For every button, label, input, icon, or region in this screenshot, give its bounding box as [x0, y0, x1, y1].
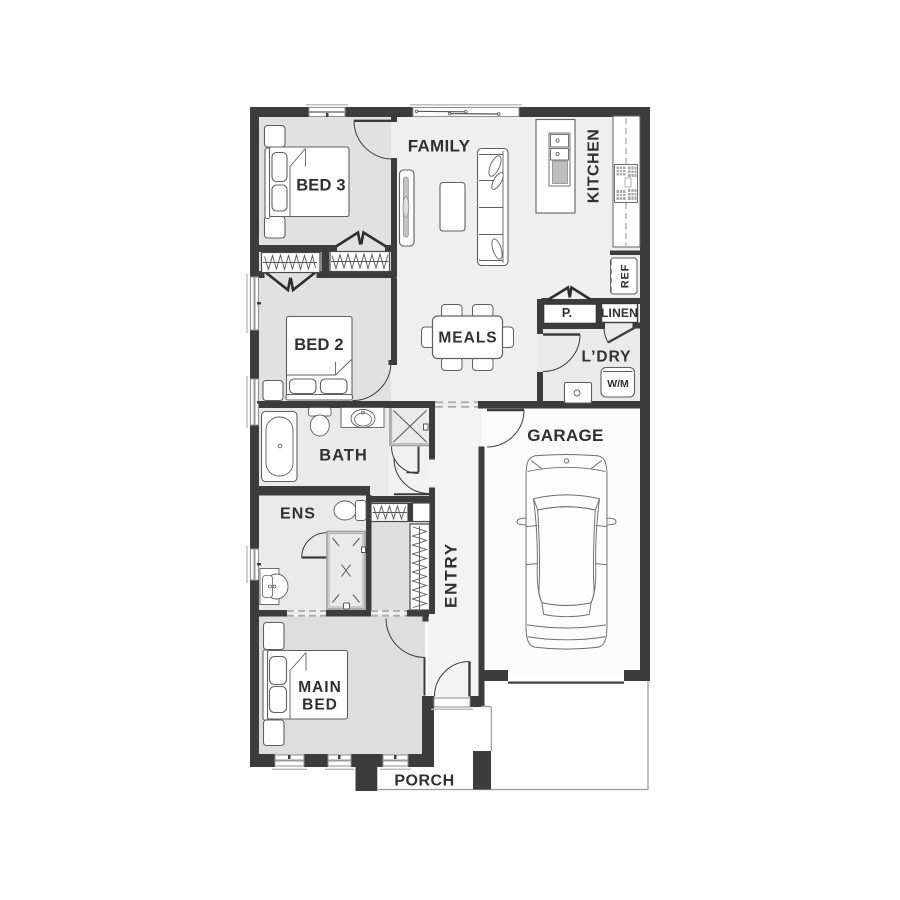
svg-text:ENTRY: ENTRY: [442, 542, 461, 608]
svg-text:KITCHEN: KITCHEN: [586, 129, 603, 204]
svg-text:GARAGE: GARAGE: [527, 426, 603, 445]
svg-text:BED: BED: [302, 697, 338, 714]
svg-text:ENS: ENS: [280, 506, 316, 523]
svg-text:REF: REF: [620, 264, 632, 288]
svg-text:W/M: W/M: [607, 378, 629, 390]
svg-text:LINEN: LINEN: [601, 306, 638, 320]
svg-text:FAMILY: FAMILY: [408, 137, 471, 156]
svg-text:PORCH: PORCH: [394, 773, 454, 790]
svg-text:BED 3: BED 3: [296, 177, 346, 195]
svg-text:P.: P.: [562, 306, 572, 320]
svg-text:MEALS: MEALS: [438, 330, 497, 347]
svg-text:BED 2: BED 2: [294, 336, 344, 354]
svg-text:BATH: BATH: [319, 447, 368, 465]
svg-text:L’DRY: L’DRY: [581, 349, 631, 366]
svg-text:MAIN: MAIN: [298, 679, 342, 696]
